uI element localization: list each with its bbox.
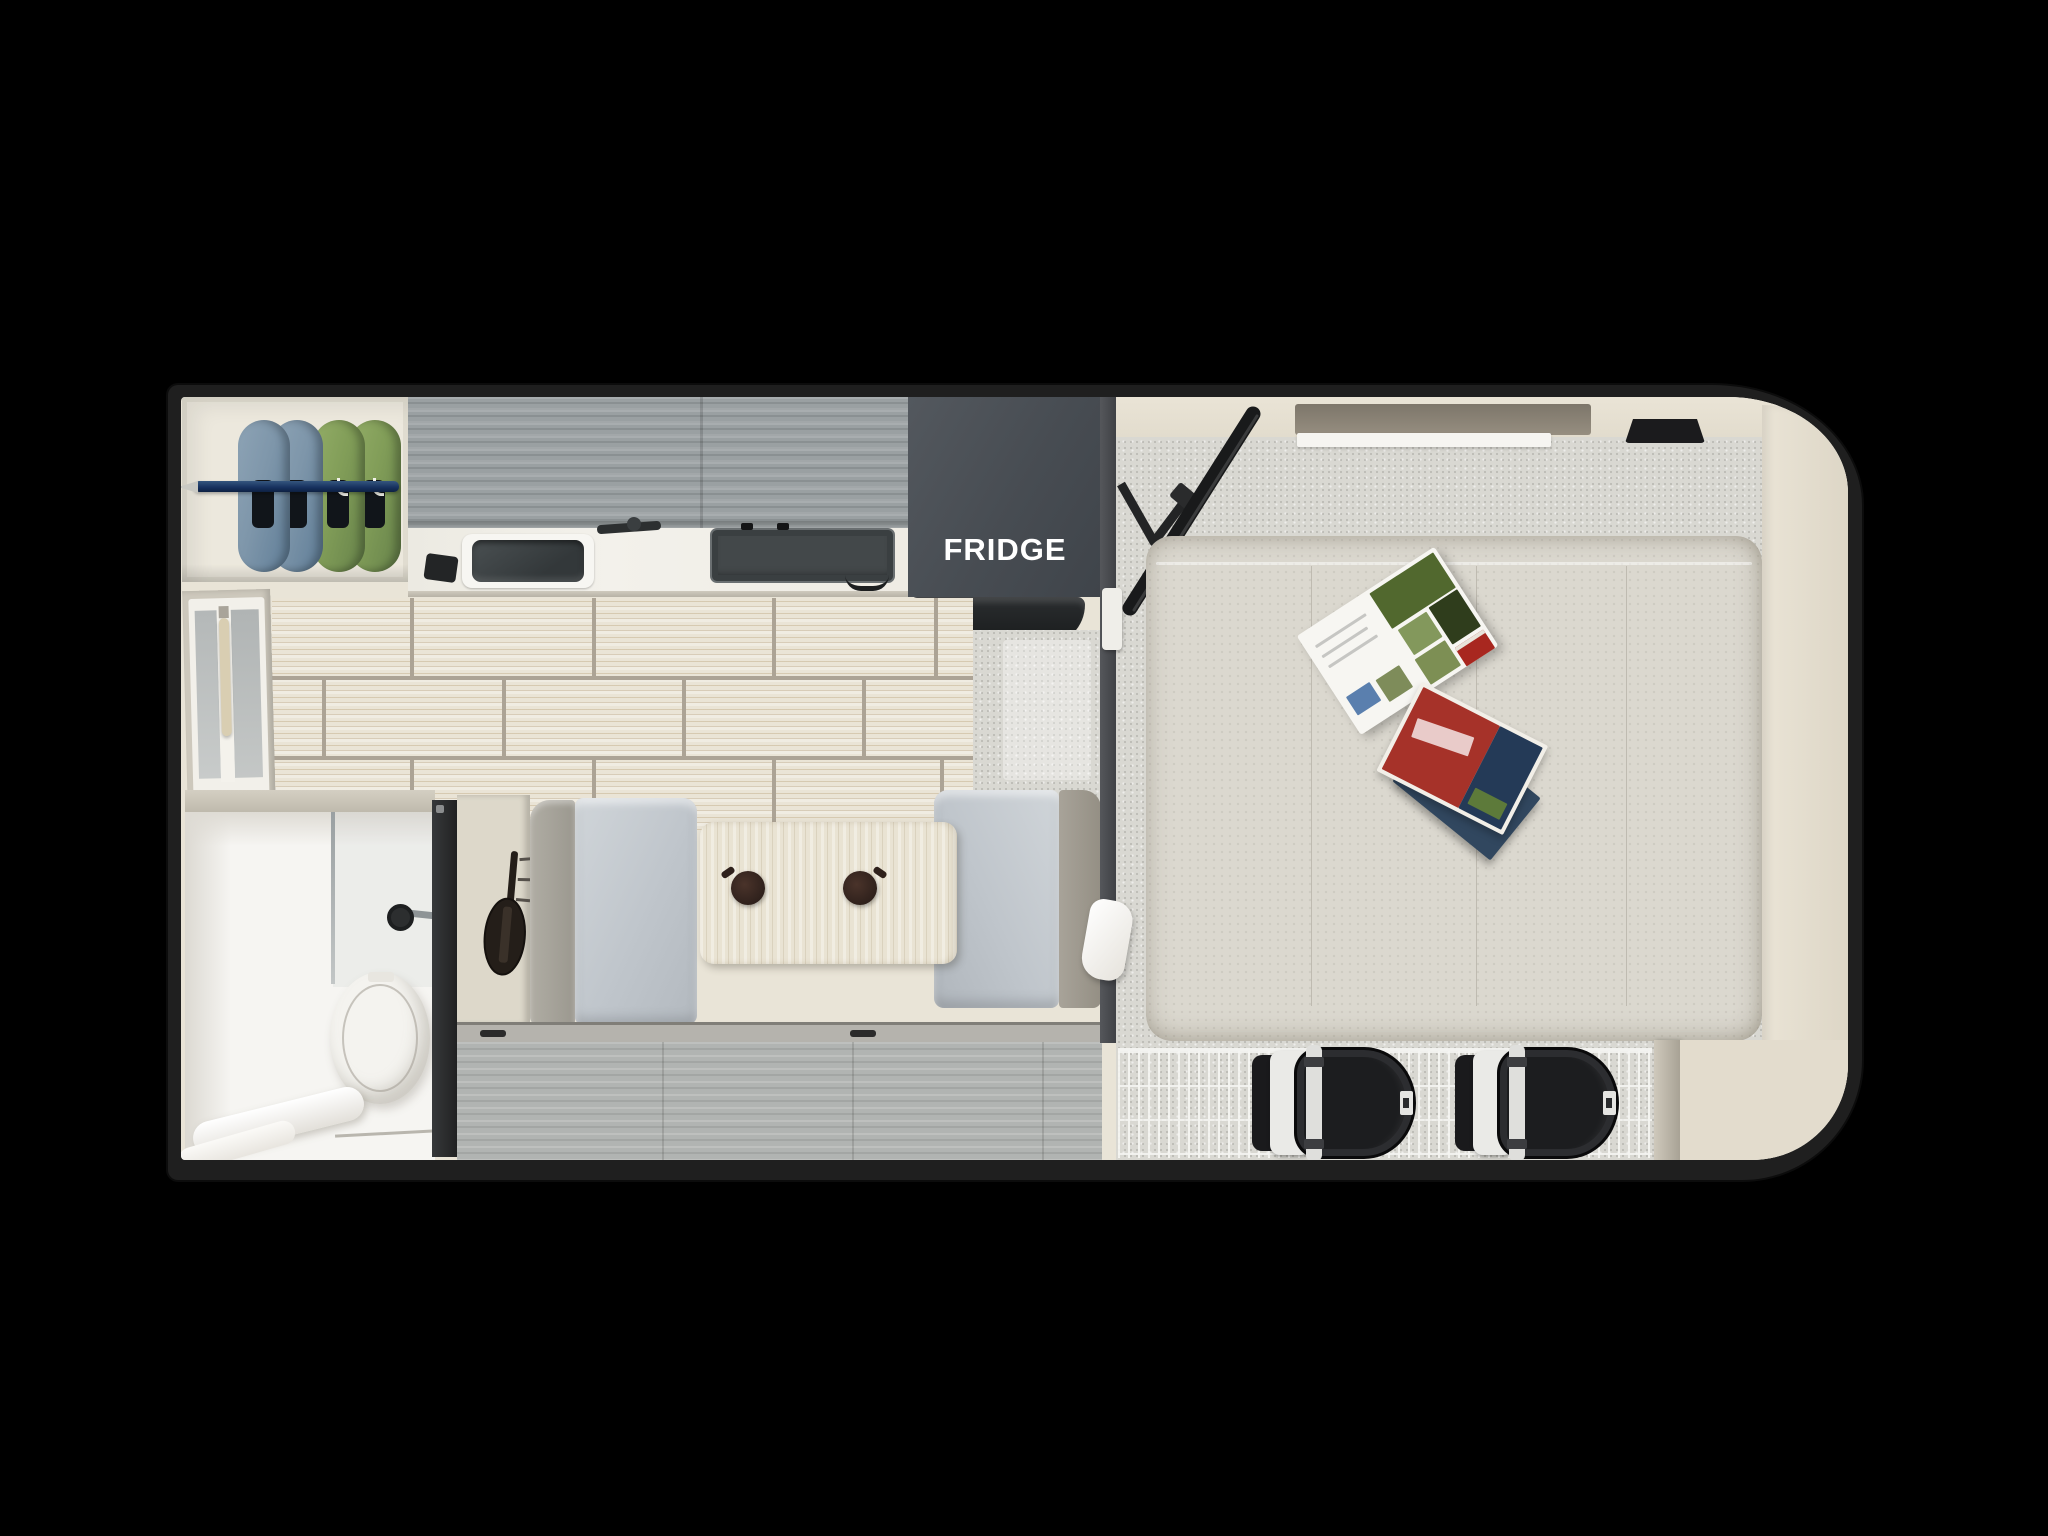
toilet-lid — [342, 984, 418, 1092]
front-floor-panel — [1680, 1040, 1848, 1160]
side-window — [182, 589, 276, 813]
closet-rod-end — [181, 481, 198, 493]
floorplan-render: FRIDGE — [0, 0, 2048, 1536]
toilet — [330, 972, 430, 1104]
faucet-base — [627, 517, 641, 531]
bathroom-door — [432, 800, 457, 1157]
stove-knob-1 — [741, 523, 753, 530]
wet-bath — [185, 812, 435, 1160]
backpack-1 — [1252, 1047, 1424, 1159]
backpack-2 — [1455, 1047, 1627, 1159]
cabinet-seam — [700, 397, 703, 530]
shower-glass-panel — [333, 812, 436, 987]
dinette-bench-left-backrest — [530, 800, 575, 1025]
bathroom-shelf-edge — [185, 790, 435, 814]
sink-basin — [472, 540, 584, 582]
coffee-mug-2 — [843, 871, 877, 905]
tile-grout-row-2 — [272, 756, 973, 760]
dinette-step-trim — [457, 1022, 1102, 1042]
stove-knob-2 — [777, 523, 789, 530]
bedroom-step-platform — [1003, 640, 1091, 780]
floor-latch-2 — [850, 1030, 876, 1037]
wardrobe-closet — [182, 397, 408, 582]
entry-wood-floor — [457, 1042, 1102, 1160]
bedroom-window-sill — [1297, 433, 1551, 447]
dinette-bench-left-cushion — [575, 798, 697, 1025]
hanging-jacket-blue-1 — [238, 420, 290, 572]
fridge-label: FRIDGE — [908, 532, 1102, 568]
window-glass-right — [231, 609, 263, 778]
floor-latch-1 — [480, 1030, 506, 1037]
roof-vent — [1625, 419, 1705, 443]
shower-divider — [331, 812, 335, 984]
closet-rod — [194, 481, 399, 492]
camper-interior: FRIDGE — [181, 397, 1848, 1160]
shower-squeegee — [335, 1129, 435, 1137]
coffee-mug-1 — [731, 871, 765, 905]
shower-head — [387, 904, 414, 931]
closet-shadow — [182, 564, 408, 582]
counter-appliance — [423, 553, 458, 583]
toilet-hinge — [368, 972, 394, 982]
bathroom-door-latch — [436, 805, 444, 813]
bedroom-window — [1295, 404, 1591, 435]
tile-grout-row-1 — [272, 676, 973, 680]
refrigerator: FRIDGE — [908, 397, 1102, 597]
foot-divider-wall — [1654, 1040, 1680, 1160]
window-shade-hinge — [219, 606, 229, 618]
countertop-edge — [408, 591, 911, 597]
front-cap-panel — [1762, 405, 1848, 1140]
overhead-cabinet-run — [408, 397, 911, 530]
